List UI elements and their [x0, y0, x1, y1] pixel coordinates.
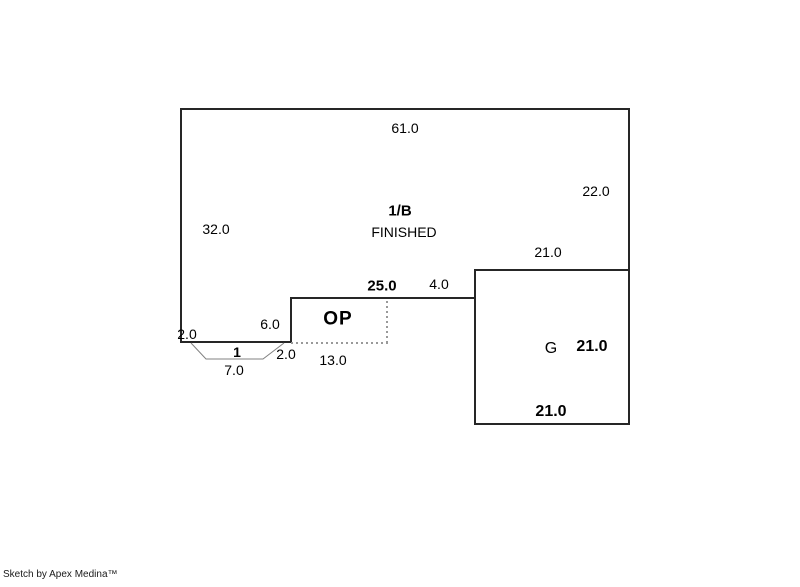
dim-main-left-step: 2.0	[177, 327, 196, 341]
credit-text: Sketch by Apex Medina™	[3, 569, 118, 580]
dim-porch-bottom: 13.0	[319, 353, 346, 367]
dim-bay-right: 2.0	[276, 347, 295, 361]
floor-outline-svg	[0, 0, 800, 587]
area-main-label: 1/B	[388, 204, 411, 219]
dim-main-right: 22.0	[582, 184, 609, 198]
area-garage-label: G	[545, 341, 557, 357]
dim-porch-left: 6.0	[260, 317, 279, 331]
dim-garage-bottom: 21.0	[535, 404, 566, 420]
area-main-status: FINISHED	[371, 225, 436, 239]
dim-porch-span: 25.0	[367, 279, 396, 294]
sketch-canvas: 61.0 22.0 32.0 1/B FINISHED 21.0 25.0 4.…	[0, 0, 800, 587]
dim-garage-jog: 4.0	[429, 277, 448, 291]
dim-bay-width: 7.0	[224, 363, 243, 377]
area-bay-label: 1	[233, 345, 241, 359]
dim-garage-top: 21.0	[534, 245, 561, 259]
dim-main-top: 61.0	[391, 121, 418, 135]
dim-garage-side: 21.0	[576, 339, 607, 355]
area-porch-label: OP	[323, 310, 352, 329]
dim-main-left: 32.0	[202, 222, 229, 236]
